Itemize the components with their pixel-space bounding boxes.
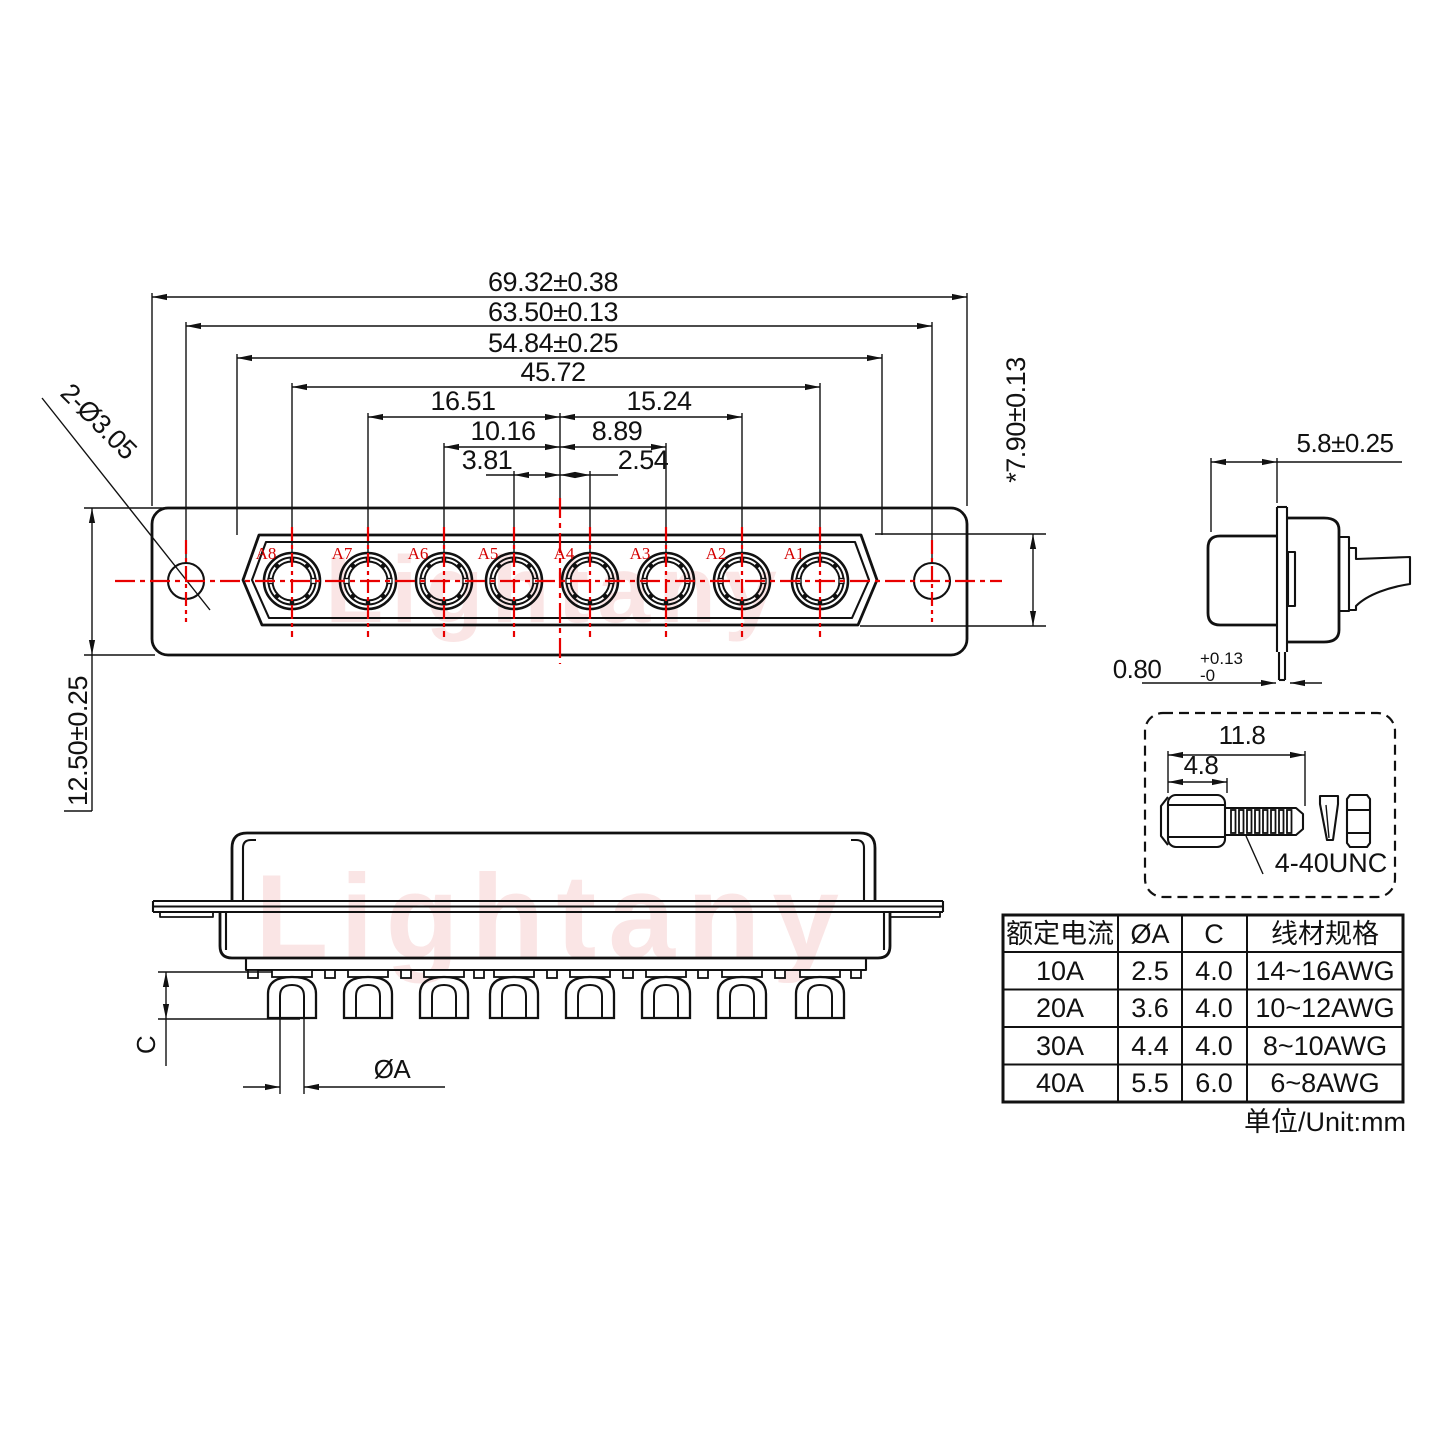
cell: 4.4 [1131, 1031, 1169, 1061]
contact-label-a4: A4 [554, 544, 575, 563]
cell: 30A [1036, 1031, 1084, 1061]
dim-width-contacts: 45.72 [520, 357, 585, 387]
side-view-dimension-lines [1142, 462, 1402, 683]
header-wire-gauge: 线材规格 [1271, 919, 1379, 949]
cell: 5.5 [1131, 1068, 1169, 1098]
contact-label-a7: A7 [332, 544, 353, 563]
bottom-shell-wall-right [851, 840, 864, 901]
contact-label-a2: A2 [706, 544, 727, 563]
dim-right-a4: 2.54 [618, 445, 669, 475]
header-diameter-a: ØA [1130, 919, 1169, 949]
dim-left-a5: 3.81 [462, 445, 513, 475]
cell: 6~8AWG [1270, 1068, 1379, 1098]
side-view: 5.8±0.25 0.80 +0.13 -0 [1113, 428, 1410, 685]
watermark-bottom: Lightany [255, 850, 851, 984]
spec-table-row-3: 30A 4.4 4.0 8~10AWG [1036, 1031, 1387, 1061]
watermark: Lightany Lightany [255, 537, 851, 984]
dim-flange-tol-lower: -0 [1200, 666, 1215, 685]
dim-face-to-flange: 5.8±0.25 [1296, 428, 1393, 458]
spec-table: 额定电流 ØA C 线材规格 10A 2.5 4.0 14~16AWG 20A … [1003, 915, 1406, 1137]
header-c: C [1204, 919, 1224, 949]
header-rated-current: 额定电流 [1006, 919, 1114, 949]
dim-width-holes: 63.50±0.13 [488, 297, 618, 327]
cell: 10~12AWG [1255, 993, 1394, 1023]
spec-table-row-1: 10A 2.5 4.0 14~16AWG [1036, 956, 1395, 986]
dim-body-height: 12.50±0.25 [63, 676, 93, 806]
dim-flange-thickness: 0.80 [1113, 654, 1162, 684]
thread-leader-line [1246, 836, 1263, 874]
side-view-extension-lines [1211, 458, 1277, 532]
dim-screw-overall: 11.8 [1219, 720, 1266, 750]
thread-spec-label: 4-40UNC [1275, 848, 1388, 878]
cell: 4.0 [1195, 993, 1233, 1023]
spec-table-row-2: 20A 3.6 4.0 10~12AWG [1036, 993, 1395, 1023]
cell: 4.0 [1195, 956, 1233, 986]
dim-right-a2: 15.24 [626, 386, 692, 416]
spec-table-row-4: 40A 5.5 6.0 6~8AWG [1036, 1068, 1380, 1098]
dim-screw-head: 4.8 [1184, 750, 1219, 780]
screw-detail: 11.8 4.8 4-40UNC [1145, 713, 1395, 897]
cell: 6.0 [1195, 1068, 1233, 1098]
contact-label-a5: A5 [478, 544, 499, 563]
connector-engineering-drawing: Lightany Lightany [0, 0, 1440, 1440]
contact-label-a1: A1 [784, 544, 805, 563]
unit-note: 单位/Unit:mm [1244, 1107, 1406, 1137]
cell: 8~10AWG [1263, 1031, 1387, 1061]
side-front-shell [1208, 536, 1277, 625]
side-flange-plate [1277, 507, 1287, 680]
screw-accessory-pin [1320, 796, 1338, 840]
dim-width-insert: 54.84±0.25 [488, 328, 618, 358]
spec-table-header-row: 额定电流 ØA C 线材规格 [1006, 919, 1379, 949]
side-insert-edge [1288, 552, 1295, 606]
contact-label-a3: A3 [630, 544, 651, 563]
cell: 40A [1036, 1068, 1084, 1098]
dim-left-a6: 10.16 [470, 416, 535, 446]
dim-cup-diameter: ØA [374, 1054, 412, 1084]
cell: 20A [1036, 993, 1084, 1023]
thumbscrew [1161, 795, 1303, 847]
cell: 4.0 [1195, 1031, 1233, 1061]
cell: 10A [1036, 956, 1084, 986]
cell: 3.6 [1131, 993, 1169, 1023]
dim-width-outer: 69.32±0.38 [488, 267, 618, 297]
cell: 14~16AWG [1255, 956, 1394, 986]
side-cable-boot [1339, 537, 1410, 611]
dim-hole-note: 2-Ø3.05 [55, 378, 143, 466]
cell: 2.5 [1131, 956, 1169, 986]
contact-label-a6: A6 [408, 544, 429, 563]
dim-insert-height: *7.90±0.13 [1001, 357, 1031, 482]
dim-cup-depth: C [131, 1036, 161, 1054]
dim-left-a7: 16.51 [430, 386, 495, 416]
contact-label-a8: A8 [256, 544, 277, 563]
dim-right-a3: 8.89 [592, 416, 643, 446]
screw-accessory-barrel [1347, 795, 1370, 847]
